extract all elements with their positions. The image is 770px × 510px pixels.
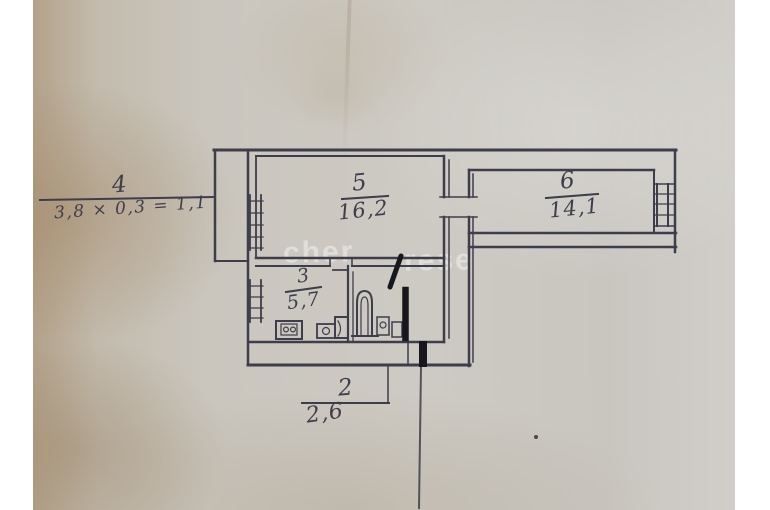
washbasin-symbol bbox=[377, 317, 402, 337]
stove-symbol bbox=[276, 321, 302, 339]
room6-window bbox=[654, 184, 675, 226]
hall-walls bbox=[440, 170, 477, 366]
bottom-inner-wall bbox=[250, 342, 444, 365]
balcony-number-label: 4 bbox=[111, 173, 128, 197]
small-dark-speck bbox=[534, 435, 538, 439]
floor-plan-drawing bbox=[0, 0, 770, 510]
kitchen-window bbox=[248, 280, 263, 322]
photo-of-floor-plan: cher rese bbox=[0, 0, 770, 510]
room5-number-label: 5 bbox=[351, 171, 368, 195]
kitchen-area-label: 5,7 bbox=[286, 290, 322, 313]
room6-area-label: 14,1 bbox=[548, 195, 601, 221]
bathroom-number-label: 2 bbox=[337, 376, 354, 400]
toilet-symbol bbox=[352, 291, 378, 336]
room5-area-label: 16,2 bbox=[337, 197, 390, 223]
kitchen-number-label: 3 bbox=[296, 266, 311, 286]
room6-number-label: 6 bbox=[559, 169, 576, 193]
sink-symbol bbox=[317, 317, 348, 338]
long-vertical-line bbox=[419, 367, 421, 508]
bathroom-area-label: 2,6 bbox=[305, 400, 346, 427]
